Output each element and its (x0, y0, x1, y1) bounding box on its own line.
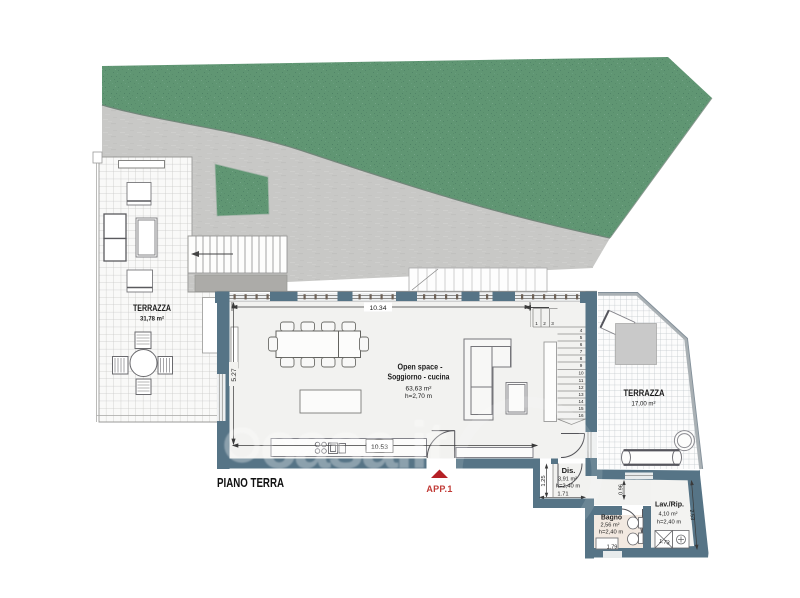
svg-text:2,56 m²: 2,56 m² (601, 523, 620, 529)
svg-text:4: 4 (580, 328, 583, 333)
svg-text:6: 6 (580, 342, 583, 347)
svg-text:4,10 m²: 4,10 m² (659, 512, 678, 518)
svg-text:13: 13 (578, 392, 584, 397)
svg-text:11: 11 (579, 378, 584, 383)
svg-text:Lav./Rip.: Lav./Rip. (655, 500, 684, 509)
svg-text:1: 1 (535, 321, 538, 326)
svg-text:10.34: 10.34 (369, 305, 386, 312)
svg-text:h=2,40 m: h=2,40 m (599, 530, 624, 536)
svg-text:5: 5 (580, 335, 583, 340)
svg-text:17,00 m²: 17,00 m² (632, 401, 657, 408)
svg-text:10: 10 (578, 371, 584, 376)
svg-text:15: 15 (578, 406, 584, 411)
svg-text:8: 8 (580, 356, 583, 361)
svg-text:Dis.: Dis. (562, 466, 576, 475)
svg-text:h=2,70 m: h=2,70 m (405, 393, 432, 400)
svg-text:h=2,40 m: h=2,40 m (657, 520, 682, 526)
svg-text:TERRAZZA: TERRAZZA (624, 388, 665, 399)
svg-text:2.53: 2.53 (688, 509, 695, 520)
svg-text:2: 2 (543, 321, 546, 326)
svg-text:5.27: 5.27 (231, 368, 238, 381)
svg-text:12: 12 (578, 385, 584, 390)
svg-text:14: 14 (578, 399, 584, 404)
svg-text:63,63 m²: 63,63 m² (406, 386, 432, 393)
svg-text:3,91 m²: 3,91 m² (558, 477, 577, 483)
svg-text:1.71: 1.71 (557, 492, 568, 498)
svg-text:Open space -: Open space - (398, 363, 443, 372)
svg-text:TERRAZZA: TERRAZZA (133, 303, 171, 314)
svg-text:1.25: 1.25 (541, 475, 547, 486)
svg-text:Bagno: Bagno (601, 513, 622, 522)
svg-text:h=2,40 m: h=2,40 m (556, 483, 581, 489)
svg-text:0.96: 0.96 (618, 484, 624, 495)
svg-text:Soggiorno - cucina: Soggiorno - cucina (388, 373, 450, 382)
svg-text:16: 16 (578, 413, 584, 418)
svg-text:7: 7 (580, 349, 583, 354)
svg-text:9: 9 (580, 363, 583, 368)
svg-text:casa.it: casa.it (260, 408, 447, 482)
svg-text:31,78 m²: 31,78 m² (140, 316, 165, 323)
svg-text:3: 3 (551, 321, 554, 326)
svg-text:1.79: 1.79 (607, 545, 618, 551)
svg-text:APP.1: APP.1 (426, 484, 452, 494)
